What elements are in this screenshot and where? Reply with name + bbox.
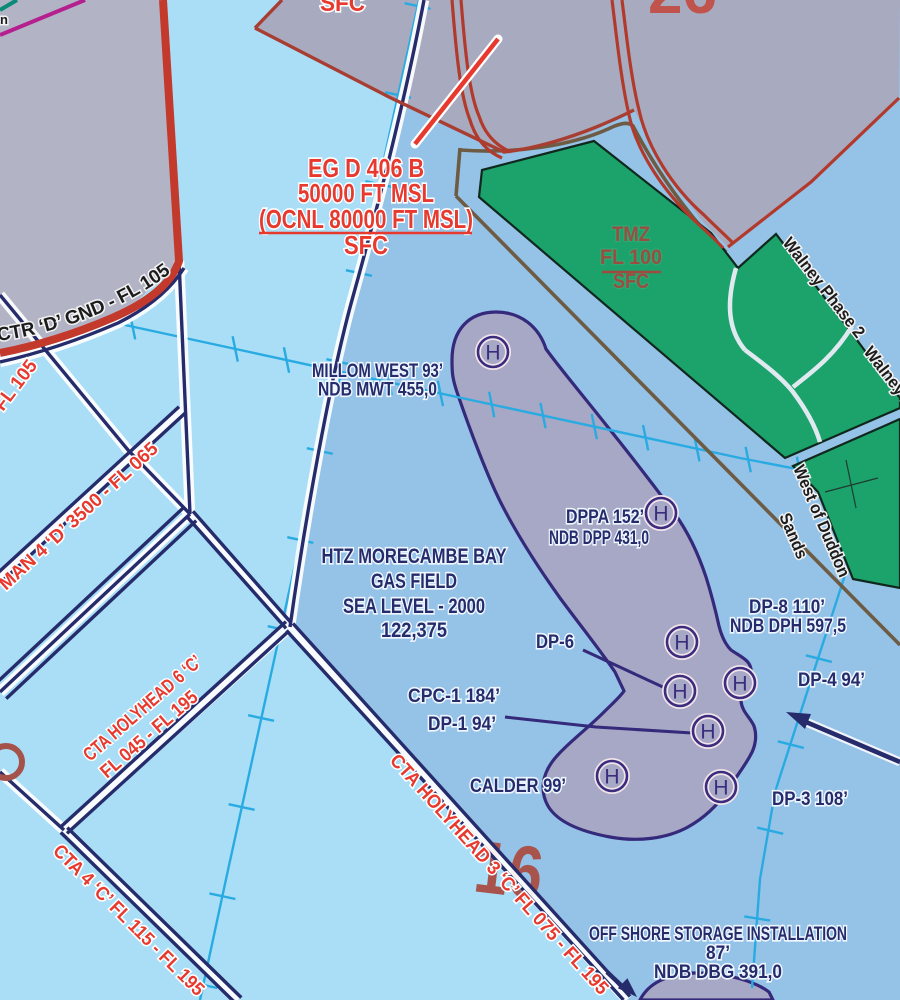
svg-text:26: 26 [648,0,717,27]
svg-text:SFC: SFC [320,0,365,17]
svg-text:HTZ MORECAMBE BAY: HTZ MORECAMBE BAY [322,545,507,568]
svg-text:FL 100: FL 100 [600,246,662,269]
svg-text:H: H [732,673,747,696]
svg-text:H: H [674,632,689,655]
svg-text:NDB DBG 391,0: NDB DBG 391,0 [654,962,782,983]
svg-text:122,375: 122,375 [381,619,447,642]
svg-text:n: n [0,12,8,27]
svg-text:CALDER 99’: CALDER 99’ [470,776,566,797]
svg-text:OFF SHORE STORAGE INSTALLATION: OFF SHORE STORAGE INSTALLATION [589,924,847,945]
svg-text:DP-4 94’: DP-4 94’ [798,670,865,691]
svg-text:H: H [604,766,619,789]
svg-text:SEA LEVEL - 2000: SEA LEVEL - 2000 [343,595,485,618]
svg-text:NDB MWT 455,0: NDB MWT 455,0 [318,380,437,401]
svg-text:NDB DPP 431,0: NDB DPP 431,0 [549,528,649,549]
svg-text:H: H [713,777,728,800]
svg-text:GAS FIELD: GAS FIELD [371,570,457,593]
svg-text:DPPA 152’: DPPA 152’ [566,507,644,528]
svg-text:DP-3 108’: DP-3 108’ [772,789,848,810]
svg-text:TMZ: TMZ [612,223,650,246]
svg-text:H: H [653,503,668,526]
svg-text:CPC-1 184’: CPC-1 184’ [408,686,500,707]
svg-text:DP-8 110’: DP-8 110’ [749,597,825,618]
svg-text:DP-1 94’: DP-1 94’ [428,714,496,735]
svg-text:87’: 87’ [706,943,730,964]
svg-text:H: H [672,681,687,704]
svg-text:NDB DPH 597,5: NDB DPH 597,5 [730,616,846,637]
svg-text:H: H [485,342,500,365]
svg-text:SFC: SFC [344,230,388,260]
svg-text:SFC: SFC [613,270,649,293]
svg-text:DP-6: DP-6 [536,632,574,653]
svg-text:H: H [700,721,715,744]
